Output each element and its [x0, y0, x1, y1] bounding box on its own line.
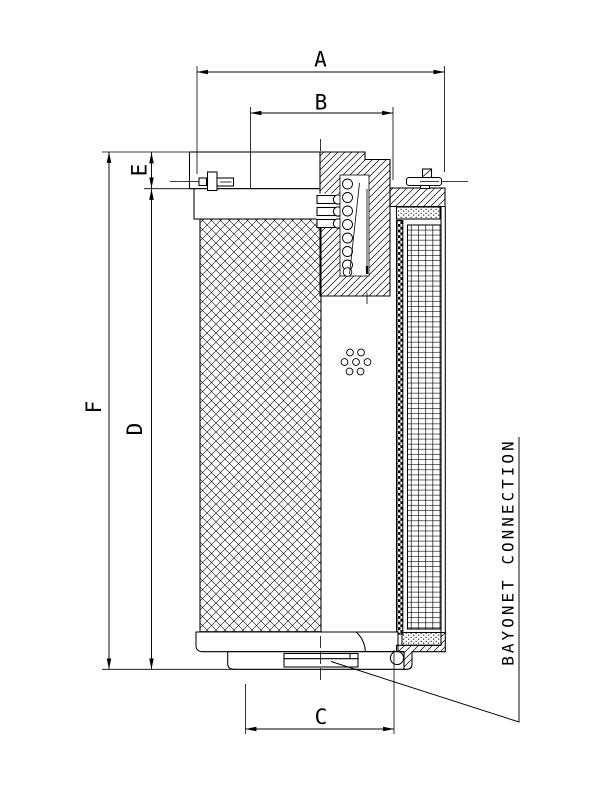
support-mesh — [408, 225, 442, 629]
dimension-c-label: C — [315, 705, 328, 729]
drawing-page: A B E F D C — [0, 0, 612, 792]
filter-element-section — [170, 139, 468, 684]
dimension-b-label: B — [315, 91, 328, 115]
valve-coil-sections — [317, 195, 343, 228]
bayonet-lug — [284, 654, 358, 668]
outer-support-basket — [397, 207, 446, 646]
felt-band-top — [397, 207, 441, 219]
top-end-cap-band — [194, 189, 320, 219]
felt-band-bottom — [402, 633, 441, 646]
dimension-a-label: A — [314, 48, 327, 72]
bayonet-pin-right — [407, 169, 469, 189]
dimension-e-label: E — [128, 164, 152, 177]
dimension-d-label: D — [123, 423, 147, 436]
dimension-e: E — [102, 152, 196, 189]
outer-flange-hatched — [390, 188, 445, 207]
dimension-d: D — [123, 189, 152, 669]
filter-media-crosshatch — [200, 219, 321, 632]
bypass-valve-hub — [317, 152, 391, 296]
o-ring-seal — [390, 651, 403, 664]
bottom-cap-band — [196, 632, 398, 652]
technical-drawing-svg: A B E F D C — [0, 0, 612, 792]
callout-text: BAYONET CONNECTION — [499, 438, 518, 665]
dimension-f-label: F — [82, 401, 106, 414]
perforation-holes — [341, 349, 371, 375]
perforated-core-tube — [397, 221, 403, 635]
